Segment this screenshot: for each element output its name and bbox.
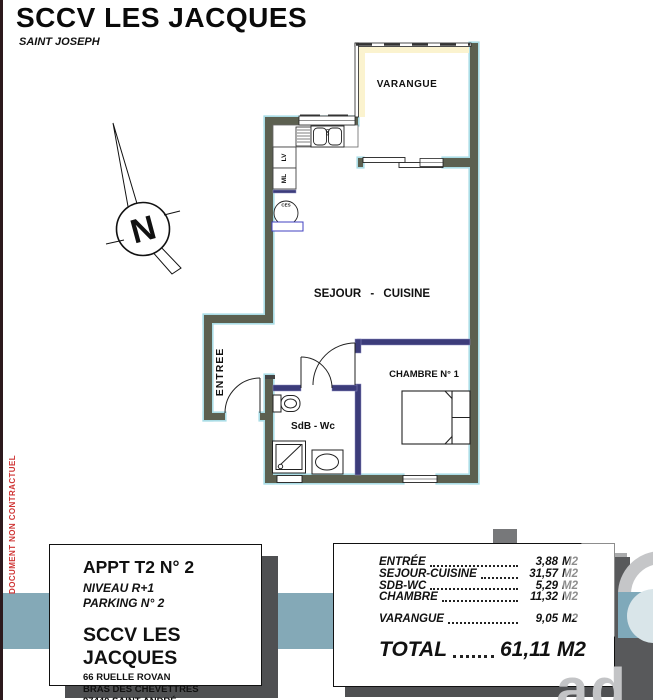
chambre-door-arc: [313, 343, 355, 385]
washbasin-icon: [312, 450, 343, 474]
windows: [277, 476, 437, 483]
label-chambre: CHAMBRE N° 1: [389, 369, 459, 380]
label-sejour-cuisine: SEJOUR - CUISINE: [314, 288, 430, 300]
parking: PARKING N° 2: [83, 596, 253, 611]
dishwasher-icon: LV: [273, 147, 296, 168]
label-varangue: VARANGUE: [377, 79, 437, 90]
kitchen: LV ML CES: [272, 116, 358, 232]
entrance-door-arc: [225, 378, 260, 413]
non-contractual-note: DOCUMENT NON CONTRACTUEL: [3, 453, 21, 595]
room-labels: VARANGUE SEJOUR - CUISINE ENTREE CHAMBRE…: [214, 79, 460, 432]
north-letter: N: [126, 208, 160, 251]
info-box: APPT T2 N° 2 NIVEAU R+1 PARKING N° 2 SCC…: [49, 544, 262, 686]
drainer-icon: [296, 127, 311, 146]
area-row-sejour: SEJOUR-CUISINE 31,57 M2: [379, 569, 586, 581]
sliding-panel: [399, 163, 443, 168]
sink-icon: [311, 126, 344, 147]
area-row-chambre: CHAMBRE 11,32 M2: [379, 592, 586, 604]
address-line-1: 66 RUELLE ROVAN: [83, 672, 253, 684]
page-title: SCCV LES JACQUES: [16, 2, 307, 34]
watermark-letters: .ad: [538, 656, 628, 700]
page-subtitle: SAINT JOSEPH: [19, 36, 307, 48]
header: SCCV LES JACQUES SAINT JOSEPH: [16, 2, 307, 48]
doors: [225, 343, 355, 413]
label-sdb-wc: SdB - Wc: [291, 421, 335, 432]
address-line-3: 97440 SAINT ANDRÉ: [83, 696, 253, 700]
shower-icon: [273, 441, 306, 473]
compass-icon: N: [106, 123, 181, 274]
washing-machine-icon: ML: [273, 168, 296, 189]
kitchen-window: [299, 116, 355, 125]
svg-text:LV: LV: [281, 153, 288, 161]
left-edge-line: [0, 0, 3, 700]
bed-icon: [402, 391, 470, 444]
svg-text:CES: CES: [281, 203, 290, 208]
svg-text:ML: ML: [281, 174, 288, 183]
water-heater-icon: CES: [274, 201, 298, 225]
counter: [273, 125, 358, 147]
sdb-door-arc: [301, 357, 332, 388]
area-row-varangue: VARANGUE 9,05 M2: [379, 614, 586, 626]
company-name: SCCV LES JACQUES: [83, 624, 253, 670]
furniture-rect: [272, 222, 303, 231]
label-entree: ENTREE: [214, 348, 226, 397]
watermark-notch: [493, 529, 517, 543]
toilet-icon: [273, 395, 300, 412]
chambre-window: [403, 476, 437, 483]
address-line-2: BRAS DES CHEVETTRES: [83, 684, 253, 696]
varangue-bay: [355, 43, 471, 168]
window: [420, 159, 443, 167]
bathroom: [273, 395, 344, 474]
exterior-walls: [204, 43, 478, 483]
floor-plan-sheet: SCCV LES JACQUES SAINT JOSEPH DOCUMENT N…: [0, 0, 653, 700]
level: NIVEAU R+1: [83, 581, 253, 596]
sdb-window: [277, 476, 302, 483]
sliding-panel: [363, 158, 405, 163]
apartment-id: APPT T2 N° 2: [83, 557, 253, 578]
wall-cap: [265, 375, 275, 379]
wall-outlines: [202, 41, 479, 484]
partition-walls: [273, 190, 470, 475]
